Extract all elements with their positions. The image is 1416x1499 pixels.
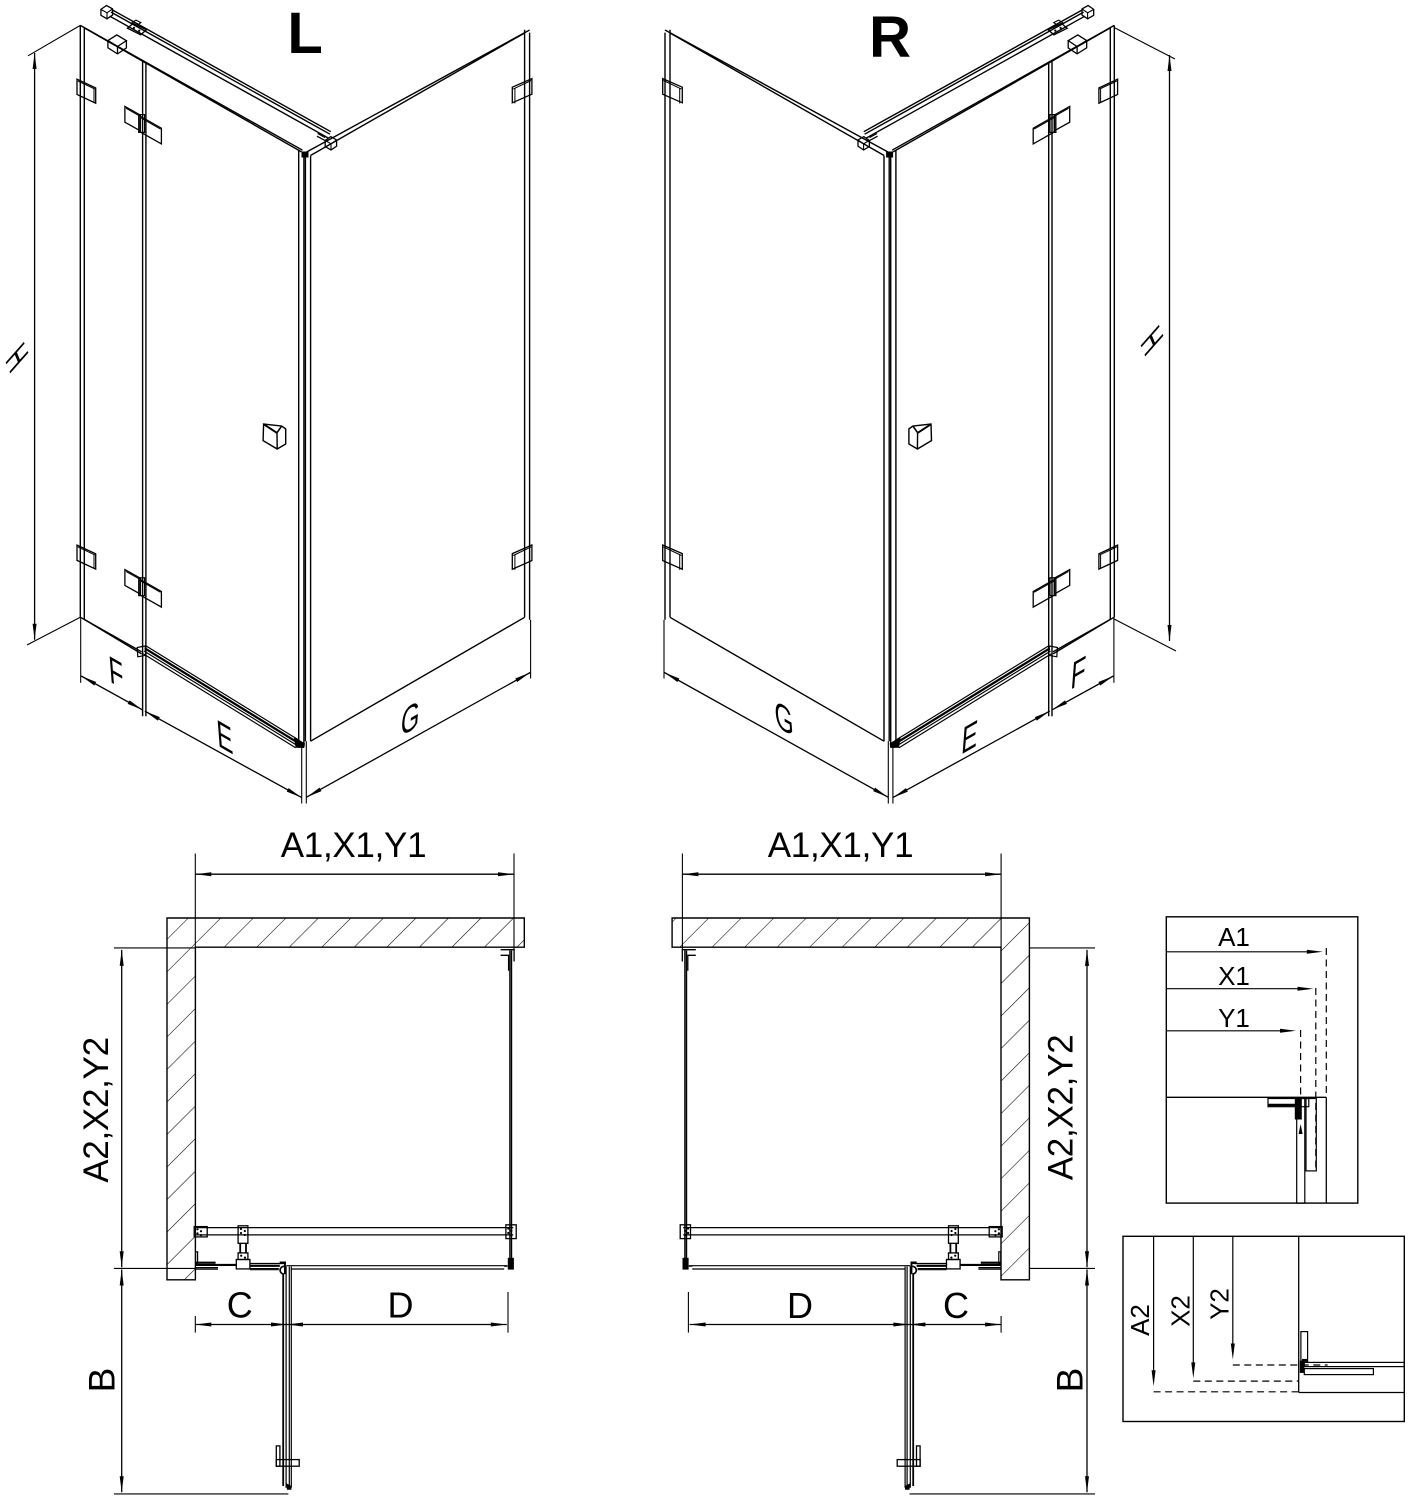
svg-text:A2,X2,Y2: A2,X2,Y2 (77, 1037, 116, 1182)
svg-text:A1: A1 (1218, 922, 1250, 952)
svg-text:X1: X1 (1218, 961, 1250, 991)
svg-text:A2: A2 (1125, 1304, 1155, 1336)
svg-text:D: D (787, 1285, 813, 1326)
svg-text:Y1: Y1 (1218, 1003, 1250, 1033)
svg-text:Y2: Y2 (1205, 1288, 1235, 1320)
svg-text:B: B (82, 1368, 123, 1393)
svg-text:L: L (287, 1, 322, 66)
svg-text:B: B (1050, 1368, 1091, 1393)
svg-text:X2: X2 (1166, 1295, 1196, 1327)
svg-text:C: C (227, 1285, 253, 1326)
svg-text:A1,X1,Y1: A1,X1,Y1 (768, 826, 913, 865)
svg-text:R: R (869, 5, 911, 70)
svg-text:C: C (943, 1285, 969, 1326)
svg-text:A2,X2,Y2: A2,X2,Y2 (1042, 1035, 1081, 1180)
svg-text:A1,X1,Y1: A1,X1,Y1 (281, 826, 426, 865)
svg-text:D: D (388, 1285, 414, 1326)
